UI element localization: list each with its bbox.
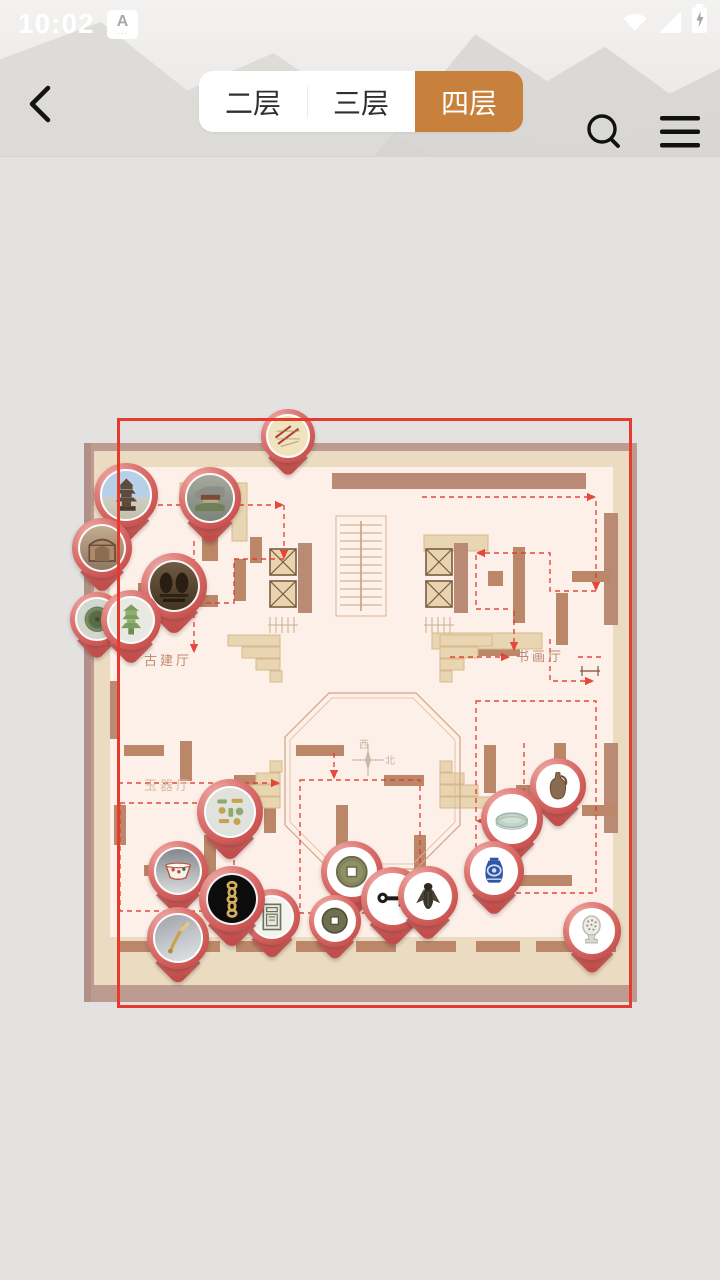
pagoda-icon [100,469,151,520]
wifi-icon [621,10,649,39]
navigation-header: 二层 三层 四层 [0,58,720,150]
pin-body [179,467,241,529]
map-pin-bronze-coin-small[interactable] [309,895,361,947]
scroll-icon [266,414,309,457]
bowl-icon [154,847,202,895]
map-pin-jade-hairpin[interactable] [147,907,209,969]
plate-icon [487,794,537,844]
tower-icon [107,596,155,644]
pin-body [398,866,458,926]
pin-body [101,590,161,650]
signal-icon [657,10,683,39]
ime-badge-icon: A ... [107,10,138,39]
pin-body [72,518,132,578]
tab-floor-3[interactable]: 三层 [307,71,415,132]
tab-floor-2[interactable]: 二层 [199,71,307,132]
map-pin-temple-mural[interactable] [72,518,132,578]
censer-icon [569,908,615,954]
pin-body [147,907,209,969]
menu-button[interactable] [652,106,708,158]
map-pin-blue-white-jar[interactable] [464,841,524,901]
staircase [336,516,386,616]
hairpin-icon [153,913,203,963]
mural-icon [78,524,126,572]
hall-label-shuhua: 书画厅 [516,649,564,664]
tab-floor-4[interactable]: 四层 [415,71,523,132]
map-pin-ancient-map-scroll[interactable] [261,409,315,463]
hall-label-gujian: 古建厅 [144,653,192,668]
map-pin-jade-ornament-set[interactable] [197,779,263,845]
pin-body [261,409,315,463]
status-bar: 10:02 A ... [0,0,720,50]
svg-text:北: 北 [385,755,395,767]
pin-body [309,895,361,947]
floor-tab-bar: 二层 三层 四层 [199,71,523,132]
chain-icon [206,873,259,926]
map-pin-glazed-tower-model[interactable] [101,590,161,650]
battery-charging-icon [691,4,708,39]
jade-icon [204,786,257,839]
pin-body [197,779,263,845]
coin2-icon [314,900,356,942]
search-button[interactable] [578,106,630,158]
pin-body [563,902,621,960]
status-time: 10:02 [18,8,95,40]
map-stage[interactable]: 西 北 古建厅 书画厅 玉器厅 [0,156,720,1280]
temple-icon [185,473,235,523]
map-pin-white-censer[interactable] [563,902,621,960]
pin-body [464,841,524,901]
map-pin-bronze-cicada[interactable] [398,866,458,926]
bluejar-icon [470,847,518,895]
hall-label-yuqi: 玉器厅 [144,778,192,793]
svg-text:西: 西 [359,740,369,751]
back-button[interactable] [14,76,66,132]
map-pin-cliff-temple[interactable] [179,467,241,529]
cicada-icon [404,872,452,920]
